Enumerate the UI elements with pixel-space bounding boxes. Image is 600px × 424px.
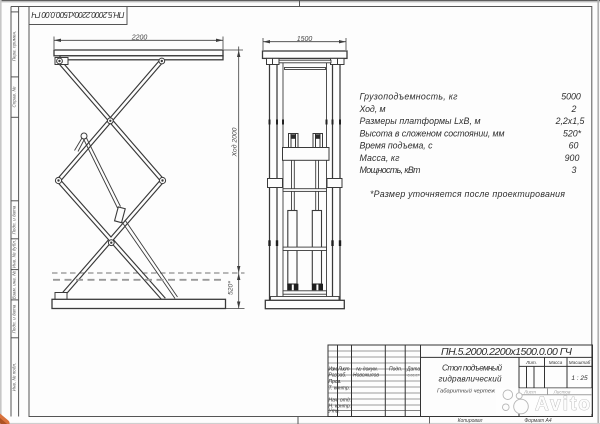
svg-text:520*: 520* bbox=[228, 281, 235, 295]
svg-text:Подп. и дата: Подп. и дата bbox=[11, 205, 16, 234]
svg-text:520*: 520* bbox=[563, 128, 582, 138]
svg-text:Новожилов: Новожилов bbox=[353, 373, 379, 379]
svg-text:5000: 5000 bbox=[561, 92, 581, 102]
svg-text:ПН.5.2000.2200х1500.0.00 ГЧ: ПН.5.2000.2200х1500.0.00 ГЧ bbox=[31, 10, 125, 19]
svg-text:гидравлический: гидравлический bbox=[439, 375, 502, 384]
svg-text:*Размер уточняется после проек: *Размер уточняется после проектирования bbox=[370, 189, 565, 199]
svg-text:Справ. №: Справ. № bbox=[11, 87, 16, 108]
svg-text:Подп.: Подп. bbox=[389, 366, 402, 372]
svg-text:Подп. и дата: Подп. и дата bbox=[11, 304, 16, 333]
svg-text:Инв. № дубл.: Инв. № дубл. bbox=[11, 240, 16, 268]
svg-text:6.06.07: 6.06.07 bbox=[408, 374, 421, 378]
svg-text:1500: 1500 bbox=[297, 36, 313, 43]
svg-text:2200: 2200 bbox=[131, 35, 148, 42]
svg-text:60: 60 bbox=[569, 141, 579, 151]
svg-text:Разраб.: Разраб. bbox=[329, 373, 347, 379]
svg-text:№ докум.: № докум. bbox=[356, 366, 378, 372]
svg-text:2: 2 bbox=[571, 104, 577, 114]
svg-text:Размеры платформы LхВ, м: Размеры платформы LхВ, м bbox=[360, 116, 481, 126]
svg-text:Утв.: Утв. bbox=[329, 409, 340, 415]
svg-text:Грузоподъемность, кг: Грузоподъемность, кг bbox=[360, 92, 459, 102]
svg-text:2,2х1,5: 2,2х1,5 bbox=[555, 116, 585, 126]
svg-text:Высота в сложеном состоянии, м: Высота в сложеном состоянии, мм bbox=[360, 128, 505, 138]
svg-text:Ход, м: Ход, м bbox=[359, 104, 386, 114]
svg-text:900: 900 bbox=[565, 153, 580, 163]
svg-text:Дата: Дата bbox=[406, 366, 420, 372]
svg-text:Перв. примен.: Перв. примен. bbox=[11, 31, 16, 62]
svg-text:ПН.5.2000.2200х1500.0.00 ГЧ: ПН.5.2000.2200х1500.0.00 ГЧ bbox=[441, 346, 573, 358]
svg-text:Габаритный чертеж: Габаритный чертеж bbox=[437, 388, 496, 395]
svg-text:Пров.: Пров. bbox=[329, 379, 342, 385]
svg-text:Взам. инв. №: Взам. инв. № bbox=[11, 271, 16, 299]
svg-text:Ход 2000: Ход 2000 bbox=[231, 127, 239, 157]
svg-text:Изм. Лист: Изм. Лист bbox=[329, 366, 350, 372]
svg-text:Время подъема, с: Время подъема, с bbox=[360, 141, 434, 151]
svg-text:Масса: Масса bbox=[549, 360, 563, 365]
svg-text:Т. контр.: Т. контр. bbox=[329, 385, 351, 391]
svg-text:Avito: Avito bbox=[535, 394, 590, 415]
svg-text:3: 3 bbox=[572, 165, 577, 175]
svg-text:Масштаб: Масштаб bbox=[569, 360, 591, 365]
svg-text:Лит.: Лит. bbox=[525, 360, 537, 365]
svg-text:Формат А4: Формат А4 bbox=[524, 418, 552, 424]
svg-text:Масса, кг: Масса, кг bbox=[360, 153, 401, 163]
svg-text:Мощность, кВт: Мощность, кВт bbox=[360, 165, 421, 175]
svg-text:Инв. № подл.: Инв. № подл. bbox=[11, 363, 16, 392]
svg-text:1 : 25: 1 : 25 bbox=[571, 375, 588, 382]
svg-text:Стол подъемный: Стол подъемный bbox=[442, 364, 502, 373]
svg-text:Копировал: Копировал bbox=[458, 418, 483, 424]
